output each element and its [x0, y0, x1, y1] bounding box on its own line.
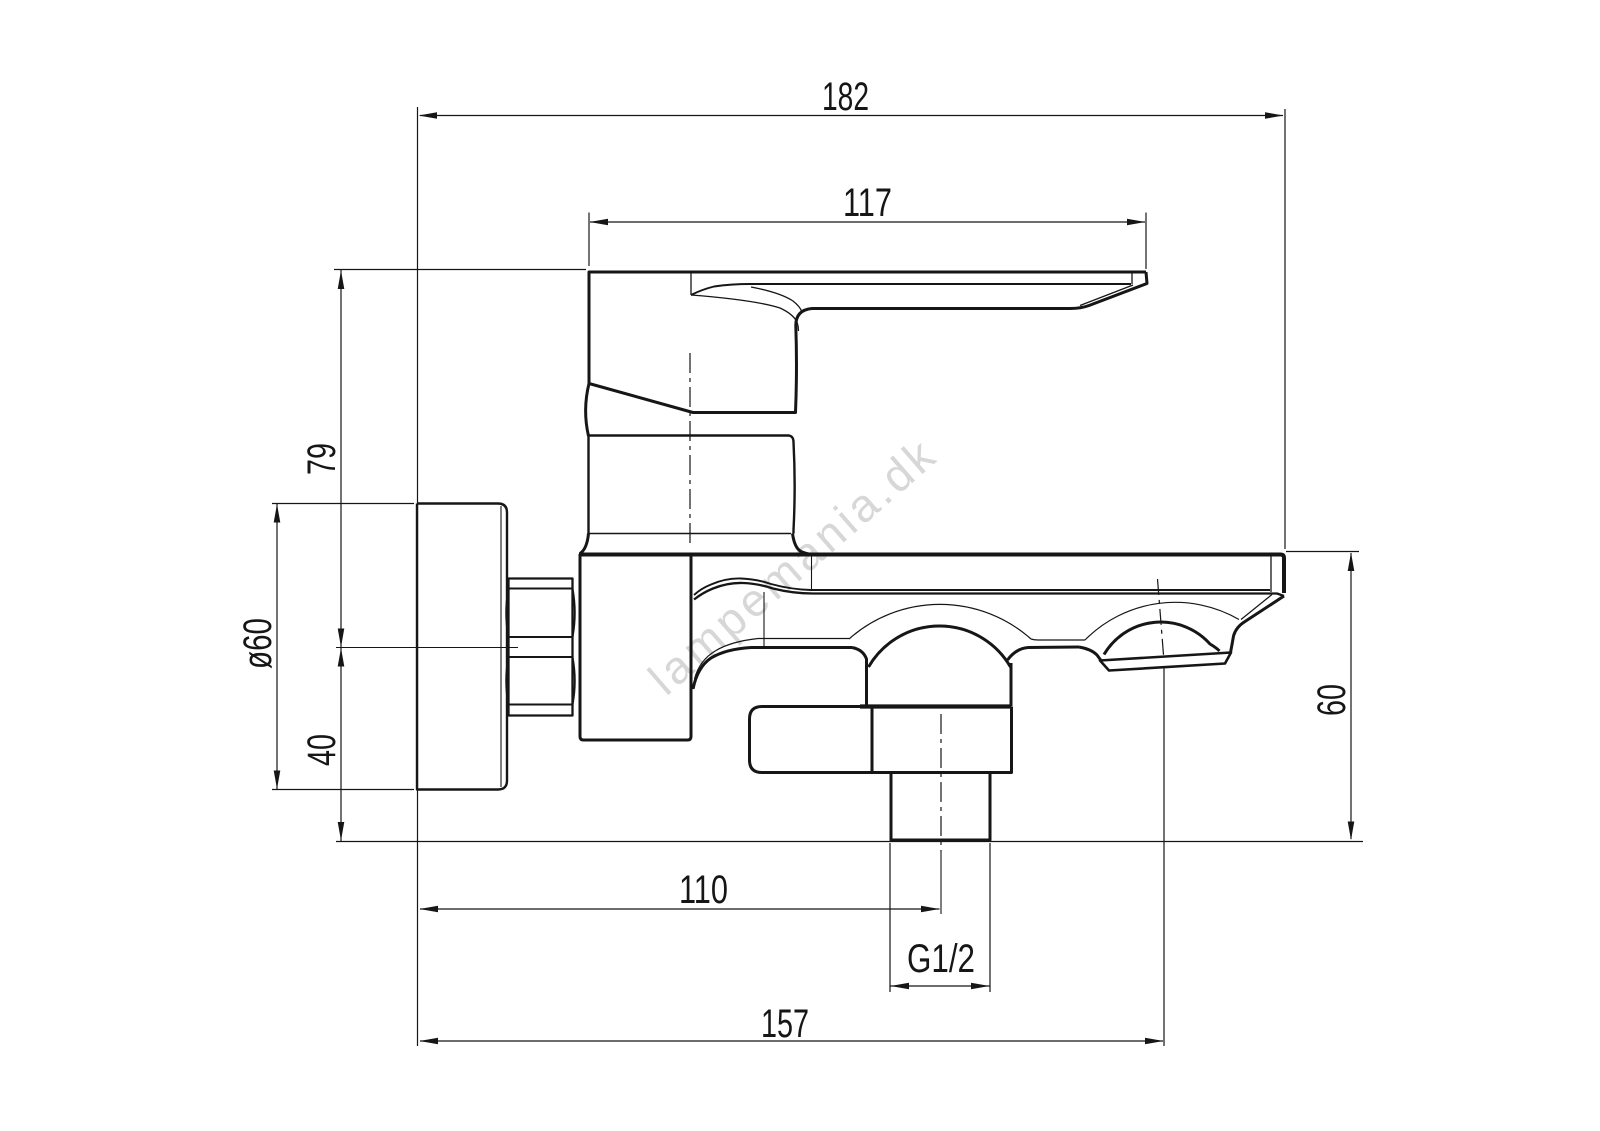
svg-text:G1/2: G1/2 — [907, 937, 975, 981]
svg-text:60: 60 — [1310, 684, 1354, 716]
svg-text:157: 157 — [761, 1002, 809, 1046]
svg-text:40: 40 — [300, 734, 344, 766]
svg-text:79: 79 — [300, 443, 344, 475]
svg-text:ø60: ø60 — [236, 618, 280, 669]
svg-text:182: 182 — [822, 75, 869, 119]
svg-text:110: 110 — [679, 868, 728, 912]
svg-text:117: 117 — [843, 181, 892, 225]
